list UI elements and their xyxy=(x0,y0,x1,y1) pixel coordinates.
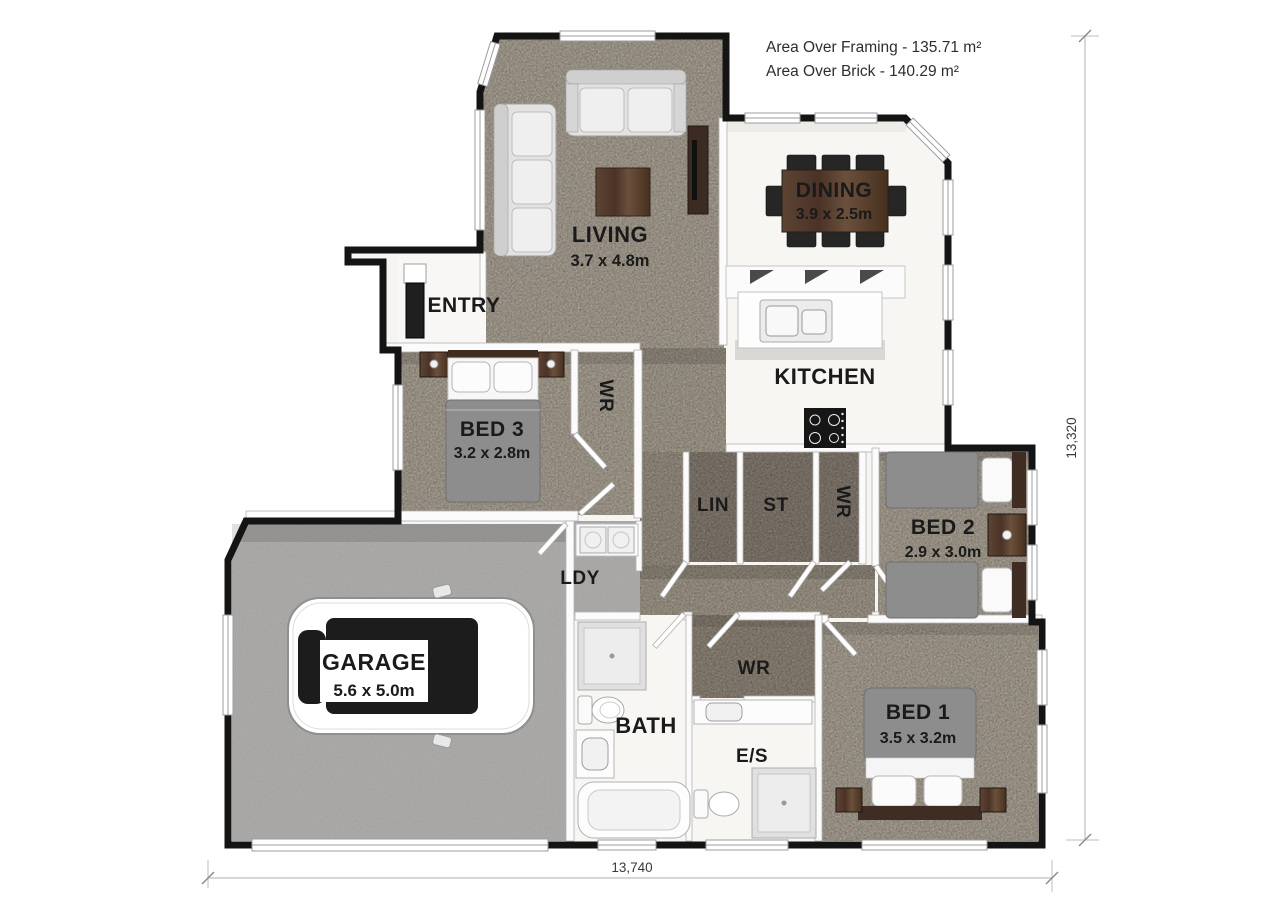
window-bed1-east-1 xyxy=(1037,650,1047,705)
es-toilet-tank-icon xyxy=(694,790,708,818)
window-kitchen-east-3 xyxy=(943,350,953,405)
window-kitchen-east-2 xyxy=(943,265,953,320)
room-size-dining: 3.9 x 2.5m xyxy=(796,206,873,223)
window-dining-top-1 xyxy=(745,113,800,123)
window-bed3-west xyxy=(393,385,403,470)
room-wr1-floor xyxy=(692,615,815,698)
room-label-garage: GARAGE xyxy=(322,649,426,675)
room-label-bed1: BED 1 xyxy=(886,701,950,724)
room-label-bed3-wr: WR xyxy=(595,380,616,413)
window-living-west xyxy=(475,110,485,230)
front-door-icon xyxy=(404,264,426,338)
area-over-brick-text: Area Over Brick - 140.29 m² xyxy=(766,63,959,80)
window-bath-south xyxy=(598,840,656,850)
window-dining-top-2 xyxy=(815,113,877,123)
laundry-bench-icon xyxy=(576,524,638,556)
room-label-lin: LIN xyxy=(697,495,729,516)
dimension-width-label: 13,740 xyxy=(611,860,652,875)
dimension-height: 13,320 xyxy=(1064,30,1099,846)
room-label-entry: ENTRY xyxy=(428,294,501,317)
dimension-height-label: 13,320 xyxy=(1064,417,1079,458)
room-label-living: LIVING xyxy=(572,222,648,247)
kitchen-island-icon xyxy=(735,292,885,360)
room-size-bed2: 2.9 x 3.0m xyxy=(905,544,982,561)
room-label-bed1-wr: WR xyxy=(738,658,771,679)
room-size-bed1: 3.5 x 3.2m xyxy=(880,730,957,747)
es-toilet-bowl-icon xyxy=(709,792,739,816)
area-over-framing-text: Area Over Framing - 135.71 m² xyxy=(766,39,981,56)
sofa-horizontal-icon xyxy=(566,70,686,136)
room-size-living: 3.7 x 4.8m xyxy=(571,252,650,270)
room-label-ensuite: E/S xyxy=(736,746,768,767)
room-label-ldy: LDY xyxy=(560,568,600,589)
room-label-bed2: BED 2 xyxy=(911,516,975,539)
window-garage-west xyxy=(223,615,233,715)
room-size-garage: 5.6 x 5.0m xyxy=(333,681,414,700)
room-label-bath: BATH xyxy=(615,713,676,738)
window-living-top xyxy=(560,31,655,41)
cooktop-icon xyxy=(804,408,846,448)
window-bed2-east-1 xyxy=(1027,470,1037,525)
sofa-vertical-icon xyxy=(494,104,556,256)
window-bed2-east-2 xyxy=(1027,545,1037,600)
room-label-bed3: BED 3 xyxy=(460,418,524,441)
garage-door-icon xyxy=(252,839,548,851)
room-label-dining: DINING xyxy=(796,179,873,202)
room-label-hall-wr: WR xyxy=(832,486,853,519)
room-size-bed3: 3.2 x 2.8m xyxy=(454,445,531,462)
window-bed1-south xyxy=(862,840,987,850)
window-bed1-east-2 xyxy=(1037,725,1047,793)
hallway-floor-b xyxy=(640,452,683,565)
coffee-table-icon xyxy=(596,168,650,216)
room-label-kitchen: KITCHEN xyxy=(774,364,875,389)
room-label-st: ST xyxy=(763,495,788,516)
window-ensuite-south xyxy=(706,840,788,850)
floor-plan-canvas: LIVING 3.7 x 4.8m DINING 3.9 x 2.5m KITC… xyxy=(0,0,1280,905)
dimension-width: 13,740 xyxy=(202,860,1058,892)
toilet-tank-icon xyxy=(578,696,592,724)
window-kitchen-east-1 xyxy=(943,180,953,235)
tv-unit-icon xyxy=(688,126,708,214)
